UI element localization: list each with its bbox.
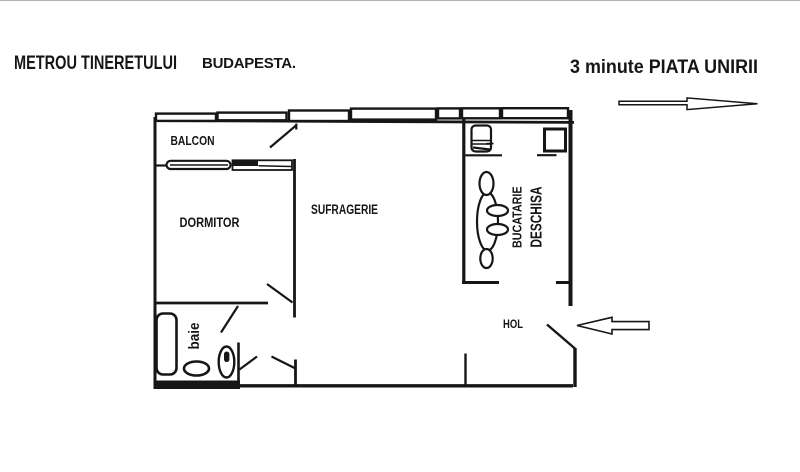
- svg-text:BUDAPESTA.: BUDAPESTA.: [202, 55, 296, 72]
- svg-text:SUFRAGERIE: SUFRAGERIE: [311, 202, 378, 217]
- svg-text:BALCON: BALCON: [171, 133, 215, 148]
- svg-text:baie: baie: [186, 323, 203, 350]
- svg-text:HOL: HOL: [503, 317, 523, 331]
- svg-text:METROU TINERETULUI: METROU TINERETULUI: [14, 52, 177, 74]
- svg-text:BUCATARIE: BUCATARIE: [511, 187, 525, 249]
- svg-text:3 minute PIATA UNIRII: 3 minute PIATA UNIRII: [570, 57, 758, 78]
- svg-text:DESCHISA: DESCHISA: [529, 186, 546, 247]
- svg-text:DORMITOR: DORMITOR: [180, 215, 240, 230]
